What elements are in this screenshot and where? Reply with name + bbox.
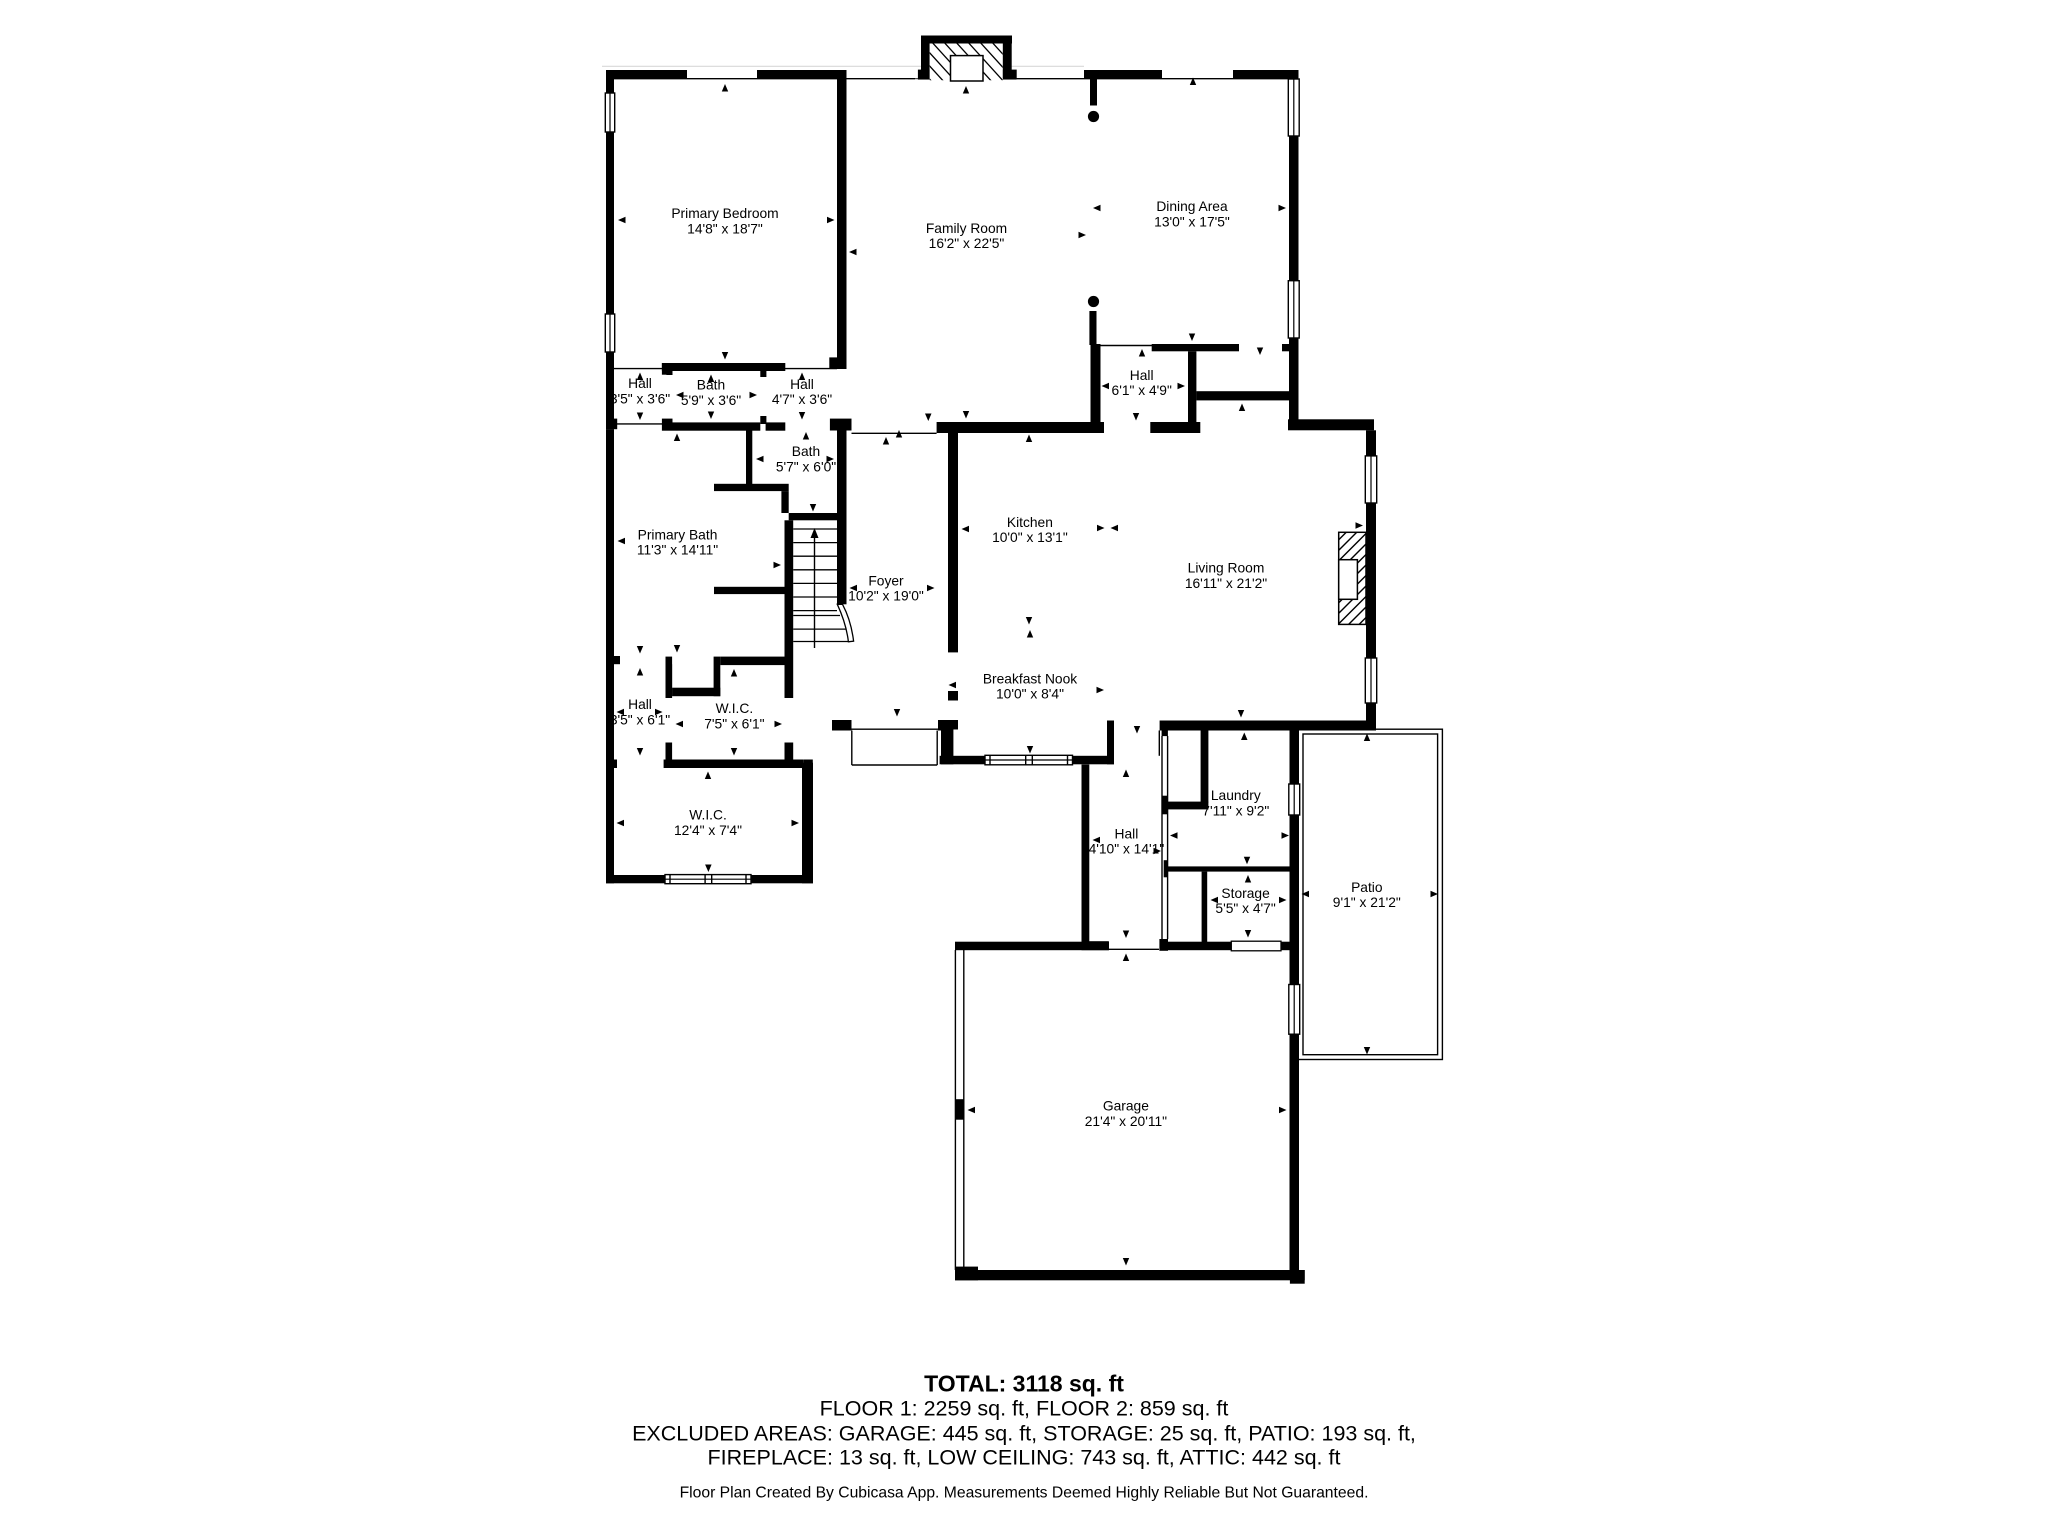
svg-text:7'5" x 6'1": 7'5" x 6'1" bbox=[704, 716, 764, 731]
svg-text:Storage: Storage bbox=[1221, 886, 1270, 901]
svg-text:W.I.C.: W.I.C. bbox=[716, 701, 754, 716]
svg-text:7'11" x 9'2": 7'11" x 9'2" bbox=[1202, 804, 1269, 819]
svg-text:10'0" x 13'1": 10'0" x 13'1" bbox=[992, 530, 1068, 545]
svg-text:12'4" x 7'4": 12'4" x 7'4" bbox=[674, 823, 742, 838]
svg-text:16'11" x 21'2": 16'11" x 21'2" bbox=[1185, 576, 1267, 591]
svg-text:Bath: Bath bbox=[697, 378, 725, 393]
svg-text:Hall: Hall bbox=[1115, 826, 1139, 841]
svg-text:5'7" x 6'0": 5'7" x 6'0" bbox=[776, 459, 836, 474]
svg-text:Hall: Hall bbox=[790, 377, 814, 392]
svg-text:Kitchen: Kitchen bbox=[1007, 515, 1053, 530]
svg-text:FIREPLACE: 13 sq. ft, LOW CEIL: FIREPLACE: 13 sq. ft, LOW CEILING: 743 s… bbox=[708, 1446, 1341, 1470]
svg-text:Living Room: Living Room bbox=[1188, 561, 1265, 576]
svg-text:5'9" x 3'6": 5'9" x 3'6" bbox=[681, 393, 741, 408]
svg-text:W.I.C.: W.I.C. bbox=[689, 808, 727, 823]
svg-text:13'0" x 17'5": 13'0" x 17'5" bbox=[1154, 214, 1230, 229]
svg-text:Family Room: Family Room bbox=[926, 221, 1007, 236]
svg-text:10'0" x 8'4": 10'0" x 8'4" bbox=[996, 687, 1064, 702]
svg-text:Bath: Bath bbox=[792, 444, 820, 459]
svg-text:14'8" x 18'7": 14'8" x 18'7" bbox=[687, 221, 763, 236]
svg-text:6'1" x 4'9": 6'1" x 4'9" bbox=[1112, 383, 1172, 398]
svg-text:EXCLUDED AREAS: GARAGE: 445 sq: EXCLUDED AREAS: GARAGE: 445 sq. ft, STOR… bbox=[632, 1422, 1416, 1446]
svg-text:Breakfast Nook: Breakfast Nook bbox=[983, 671, 1077, 686]
svg-text:3'5" x 3'6": 3'5" x 3'6" bbox=[610, 391, 670, 406]
svg-text:Hall: Hall bbox=[1130, 368, 1154, 383]
svg-text:4'7" x 3'6": 4'7" x 3'6" bbox=[772, 392, 832, 407]
svg-text:Foyer: Foyer bbox=[868, 573, 904, 588]
svg-text:9'1" x 21'2": 9'1" x 21'2" bbox=[1333, 895, 1401, 910]
svg-text:Garage: Garage bbox=[1103, 1099, 1149, 1114]
svg-text:TOTAL: 3118 sq. ft: TOTAL: 3118 sq. ft bbox=[924, 1371, 1124, 1397]
svg-text:Primary Bath: Primary Bath bbox=[638, 527, 718, 542]
svg-text:Laundry: Laundry bbox=[1211, 788, 1261, 803]
svg-text:3'5" x 6'1": 3'5" x 6'1" bbox=[610, 713, 670, 728]
svg-text:Patio: Patio bbox=[1351, 880, 1383, 895]
svg-text:FLOOR 1: 2259 sq. ft, FLOOR 2:: FLOOR 1: 2259 sq. ft, FLOOR 2: 859 sq. f… bbox=[820, 1397, 1229, 1421]
svg-text:5'5" x 4'7": 5'5" x 4'7" bbox=[1215, 901, 1275, 916]
svg-text:Primary Bedroom: Primary Bedroom bbox=[671, 206, 778, 221]
svg-text:Hall: Hall bbox=[628, 697, 652, 712]
svg-text:11'3" x 14'11": 11'3" x 14'11" bbox=[637, 543, 718, 558]
svg-text:Dining Area: Dining Area bbox=[1156, 199, 1228, 214]
svg-text:Hall: Hall bbox=[628, 376, 652, 391]
svg-text:21'4" x 20'11": 21'4" x 20'11" bbox=[1085, 1114, 1167, 1129]
svg-text:4'10" x 14'1": 4'10" x 14'1" bbox=[1089, 842, 1165, 857]
svg-text:Floor Plan Created By Cubicasa: Floor Plan Created By Cubicasa App. Meas… bbox=[680, 1485, 1369, 1502]
svg-text:10'2" x 19'0": 10'2" x 19'0" bbox=[848, 589, 924, 604]
svg-text:16'2" x 22'5": 16'2" x 22'5" bbox=[929, 236, 1005, 251]
